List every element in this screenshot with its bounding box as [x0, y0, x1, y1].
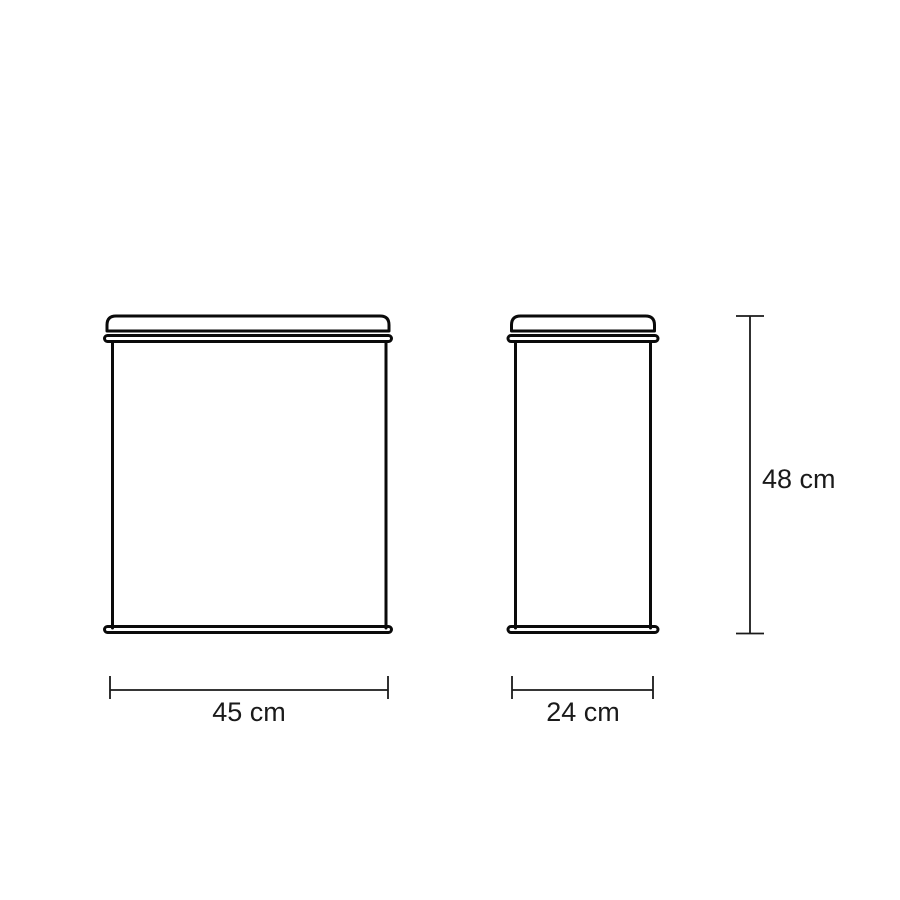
width-dimension-label: 45 cm — [212, 697, 286, 727]
width-dimension: 45 cm — [110, 676, 388, 727]
front-view-base — [105, 627, 392, 633]
front-view-lid-cap — [107, 316, 389, 331]
height-dimension: 48 cm — [736, 316, 836, 634]
front-view-lid-rim — [105, 336, 392, 342]
height-dimension-label: 48 cm — [762, 464, 836, 494]
depth-dimension-label: 24 cm — [546, 697, 620, 727]
dimension-diagram-page: 45 cm 24 cm 48 cm — [0, 0, 900, 900]
depth-dimension: 24 cm — [512, 676, 653, 727]
side-view-base — [508, 627, 658, 633]
side-view-lid-cap — [512, 316, 655, 331]
front-view — [105, 316, 392, 633]
dimension-diagram: 45 cm 24 cm 48 cm — [0, 0, 900, 900]
side-view — [508, 316, 658, 633]
side-view-lid-rim — [508, 336, 658, 342]
